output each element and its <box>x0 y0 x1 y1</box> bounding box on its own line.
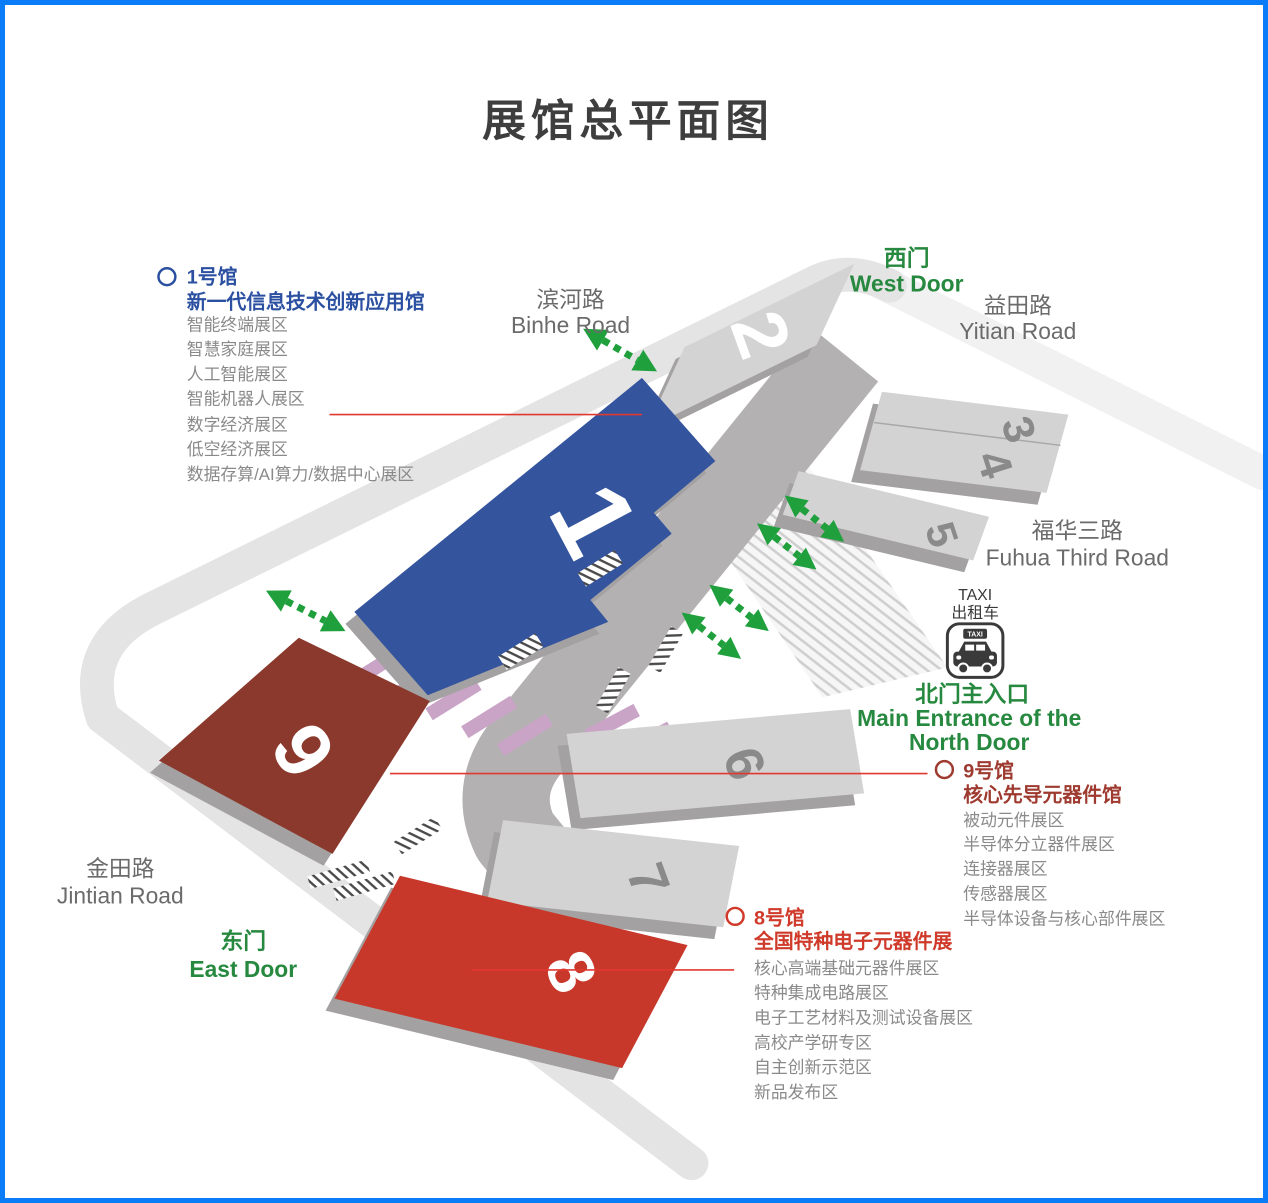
legend-hall8-item: 新品发布区 <box>754 1083 838 1102</box>
north-door-label-en1: Main Entrance of the <box>857 705 1081 731</box>
page-title: 展馆总平面图 <box>482 98 774 146</box>
legend-hall1-item: 人工智能展区 <box>187 365 288 384</box>
legend-hall8: 8号馆 全国特种电子元器件展 核心高端基础元器件展区 特种集成电路展区 电子工艺… <box>753 906 973 1102</box>
legend-hall8-name: 8号馆 <box>754 906 805 929</box>
taxi-icon-sign: TAXI <box>967 632 982 639</box>
floorplan-page: 展馆总平面图 <box>0 0 1268 1203</box>
legend-hall8-item: 电子工艺材料及测试设备展区 <box>754 1008 973 1027</box>
legend-hall8-item: 高校产学研专区 <box>754 1033 872 1052</box>
fuhua-road-label-zh: 福华三路 <box>1032 518 1123 544</box>
legend-hall8-item: 特种集成电路展区 <box>754 984 889 1003</box>
legend-hall1-bullet <box>158 268 175 285</box>
taxi-label-zh: 出租车 <box>951 604 999 622</box>
legend-hall1-title: 新一代信息技术创新应用馆 <box>187 290 425 313</box>
west-door-label-en: West Door <box>850 271 964 297</box>
yitian-road-label-en: Yitian Road <box>959 318 1076 344</box>
taxi-labels: TAXI 出租车 <box>951 587 999 622</box>
legend-hall1-item: 智慧家庭展区 <box>187 340 288 359</box>
binhe-road-label-zh: 滨河路 <box>536 286 605 312</box>
legend-hall9: 9号馆 核心先导元器件馆 被动元件展区 半导体分立器件展区 连接器展区 传感器展… <box>963 760 1165 929</box>
legend-hall9-item: 连接器展区 <box>963 860 1047 879</box>
legend-hall9-item: 传感器展区 <box>963 885 1047 904</box>
yitian-road-label-zh: 益田路 <box>984 292 1053 318</box>
legend-hall9-item: 被动元件展区 <box>963 811 1064 830</box>
east-door-label-zh: 东门 <box>220 928 266 954</box>
taxi-label-en: TAXI <box>958 587 992 604</box>
legend-hall9-name: 9号馆 <box>963 760 1014 783</box>
east-door-label-en: East Door <box>189 956 297 982</box>
legend-hall1-name: 1号馆 <box>187 266 238 289</box>
legend-hall8-title: 全国特种电子元器件展 <box>753 930 952 953</box>
north-door-label-zh: 北门主入口 <box>915 681 1029 707</box>
legend-hall1-item: 低空经济展区 <box>187 440 288 459</box>
legend-hall1-item: 数字经济展区 <box>187 415 288 434</box>
legend-hall9-title: 核心先导元器件馆 <box>963 783 1122 806</box>
fuhua-road-label-en: Fuhua Third Road <box>986 544 1169 570</box>
taxi-icon: TAXI <box>947 624 1003 678</box>
legend-hall9-bullet <box>936 761 953 778</box>
legend-hall8-item: 核心高端基础元器件展区 <box>754 959 939 978</box>
exhibition-map: 展馆总平面图 <box>5 5 1263 1198</box>
legend-hall8-bullet <box>727 908 744 925</box>
jintian-road-label-zh: 金田路 <box>86 856 155 882</box>
legend-hall9-item: 半导体设备与核心部件展区 <box>963 909 1165 928</box>
legend-hall1-item: 智能终端展区 <box>187 315 288 334</box>
legend-hall1-item: 智能机器人展区 <box>187 390 305 409</box>
legend-hall1-item: 数据存算/AI算力/数据中心展区 <box>187 465 415 484</box>
jintian-road-label-en: Jintian Road <box>57 882 184 908</box>
north-door-label-en2: North Door <box>909 729 1029 755</box>
legend-hall9-item: 半导体分立器件展区 <box>963 835 1115 854</box>
legend-hall8-item: 自主创新示范区 <box>754 1058 872 1077</box>
west-door-label-zh: 西门 <box>884 245 930 271</box>
binhe-road-label-en: Binhe Road <box>511 312 630 338</box>
entrance-arrow-west-side <box>261 580 351 642</box>
legend-hall1: 1号馆 新一代信息技术创新应用馆 智能终端展区 智慧家庭展区 人工智能展区 智能… <box>187 266 425 484</box>
